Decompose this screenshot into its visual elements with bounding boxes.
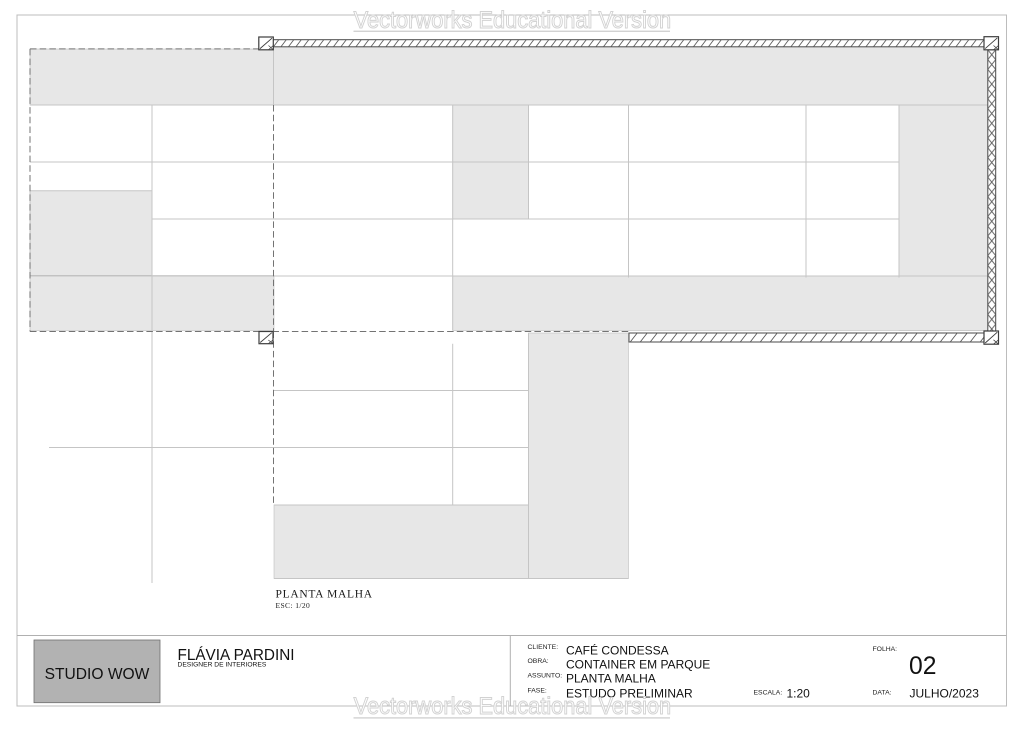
- svg-text:02: 02: [909, 653, 936, 680]
- svg-text:CAFÉ CONDESSA: CAFÉ CONDESSA: [566, 642, 669, 657]
- svg-text:ESC: 1/20: ESC: 1/20: [276, 601, 311, 610]
- svg-text:1:20: 1:20: [787, 686, 811, 700]
- svg-text:ASSUNTO:: ASSUNTO:: [528, 673, 563, 680]
- svg-text:DATA:: DATA:: [873, 689, 892, 696]
- svg-text:OBRA:: OBRA:: [528, 658, 549, 665]
- svg-text:FOLHA:: FOLHA:: [873, 646, 898, 653]
- svg-text:Vectorworks Educational Versio: Vectorworks Educational Version: [354, 692, 672, 719]
- svg-text:PLANTA MALHA: PLANTA MALHA: [566, 672, 656, 686]
- svg-text:STUDIO WOW: STUDIO WOW: [45, 666, 150, 683]
- svg-text:Vectorworks Educational Versio: Vectorworks Educational Version: [354, 6, 672, 33]
- svg-text:PLANTA MALHA: PLANTA MALHA: [276, 589, 373, 601]
- svg-text:JULHO/2023: JULHO/2023: [910, 687, 980, 701]
- svg-text:ESCALA:: ESCALA:: [754, 689, 783, 696]
- svg-text:CLIENTE:: CLIENTE:: [528, 644, 559, 651]
- svg-text:DESIGNER DE INTERIORES: DESIGNER DE INTERIORES: [178, 661, 267, 668]
- svg-text:CONTAINER EM PARQUE: CONTAINER EM PARQUE: [566, 657, 710, 671]
